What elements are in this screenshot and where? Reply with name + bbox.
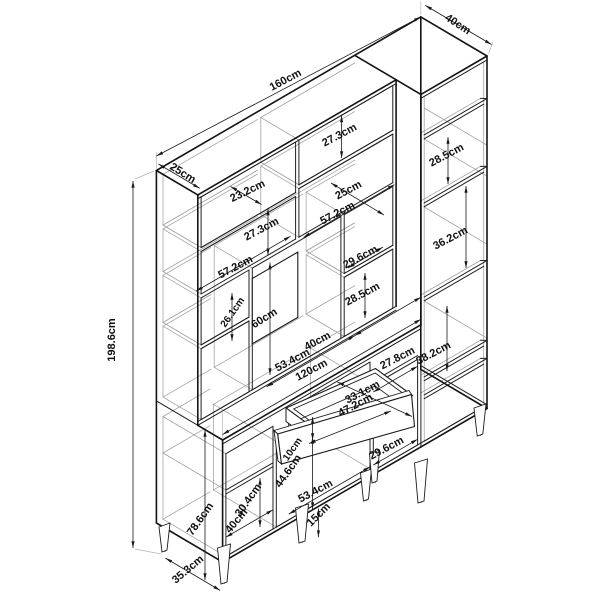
- svg-text:198.6cm: 198.6cm: [106, 318, 118, 362]
